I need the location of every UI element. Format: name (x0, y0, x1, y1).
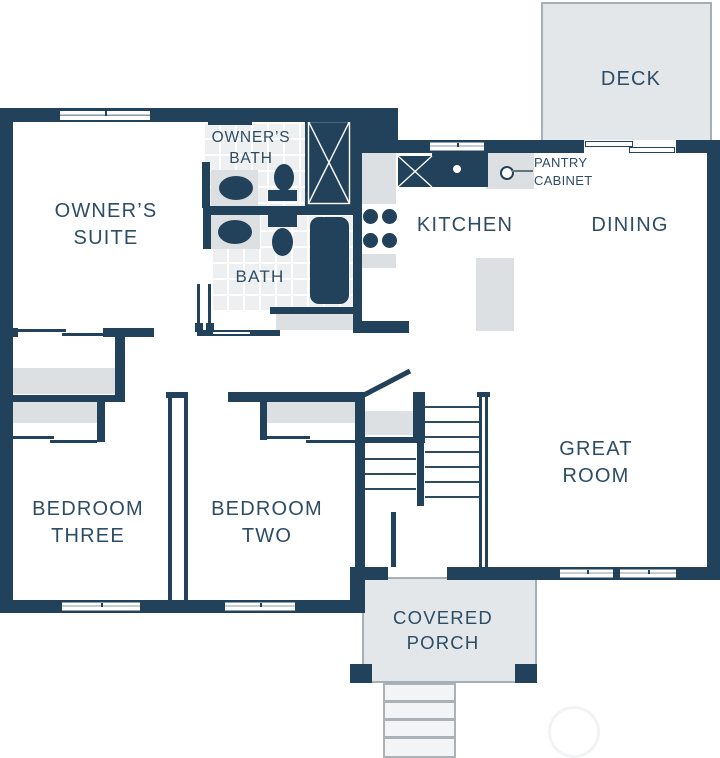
wall (8, 328, 18, 337)
bathtub-icon (310, 217, 349, 304)
porch-post (350, 664, 372, 683)
wall (355, 392, 365, 613)
sink-icon (218, 220, 252, 244)
bath-cabinet (276, 313, 353, 330)
callout-line (512, 170, 533, 172)
closet-door-track (267, 436, 310, 439)
toilet-tank (268, 190, 297, 201)
wall (97, 402, 105, 442)
toilet-tank (268, 215, 297, 227)
kitchen-island (476, 258, 514, 331)
great-room-label: GREAT ROOM (516, 436, 676, 490)
stair-landing (362, 411, 419, 435)
window-mullion (612, 567, 620, 580)
wall (417, 440, 424, 506)
wall (353, 321, 409, 333)
closet-door-track (62, 333, 107, 336)
stair-upper-flight (425, 393, 479, 505)
porch-step (383, 719, 456, 738)
door-leaf (197, 284, 200, 326)
door-swing-icon (358, 364, 414, 398)
wall (355, 437, 425, 443)
porch-post (515, 664, 537, 683)
burner-icon (363, 209, 378, 224)
kitchen-label: KITCHEN (385, 212, 545, 239)
porch-step (383, 683, 456, 702)
pantry-cabinet-label: PANTRY CABINET (534, 154, 624, 190)
toilet-icon (272, 228, 293, 256)
watermark-circle (548, 706, 600, 758)
burner-icon (363, 233, 378, 248)
window (430, 141, 484, 152)
porch-step (383, 737, 456, 758)
wall (8, 395, 116, 402)
pocket-door-track (213, 334, 250, 336)
owners-closet-shelf (10, 368, 115, 394)
bedroom-two-closet-shelf (267, 402, 355, 423)
door-leaf (208, 284, 211, 326)
wall (0, 600, 362, 613)
owners-suite-label: OWNER’S SUITE (26, 198, 186, 252)
pocket-door-track (213, 330, 250, 332)
bedroom-three-label: BEDROOM THREE (8, 496, 168, 550)
kitchen-counter (362, 153, 396, 204)
wall (353, 108, 362, 333)
wall (103, 328, 154, 337)
wall (203, 206, 353, 215)
closet-door-track (306, 440, 355, 443)
callout-marker-icon (500, 166, 514, 180)
wall (270, 307, 353, 314)
window (620, 568, 676, 579)
stair-lower-flight (360, 445, 416, 503)
wall (413, 392, 425, 440)
window (60, 109, 150, 122)
window (560, 568, 613, 579)
wall (203, 213, 211, 249)
porch-step (383, 701, 456, 720)
wall (197, 330, 213, 336)
floor-plan: DECK OWNER’S SUITE OWNER’S BATH BATH KIT… (0, 0, 720, 758)
wall (115, 333, 125, 402)
wall (0, 108, 362, 122)
window (225, 601, 295, 612)
sliding-door-panel (585, 141, 633, 147)
deck-label: DECK (551, 66, 711, 93)
sink-icon (219, 176, 253, 200)
stud-wall-line (168, 397, 172, 600)
wall (707, 140, 720, 580)
window (62, 601, 140, 612)
closet-door-track (8, 436, 54, 439)
wall (260, 392, 267, 440)
closet-door-track (18, 329, 66, 332)
dining-label: DINING (550, 212, 710, 239)
closet-door-track (50, 440, 97, 443)
bath-label: BATH (180, 266, 340, 289)
wall (228, 392, 362, 402)
stud-wall-line (485, 397, 488, 567)
bedroom-two-label: BEDROOM TWO (187, 496, 347, 550)
bedroom-three-closet-shelf (10, 402, 97, 423)
sink-drain-icon (453, 165, 461, 173)
covered-porch-label: COVERED PORCH (363, 606, 523, 656)
wall (250, 330, 280, 336)
sliding-door-panel (629, 147, 675, 153)
refrigerator-icon (396, 154, 434, 189)
wall (391, 512, 396, 567)
owners-bath-label: OWNER’S BATH (171, 128, 331, 170)
wall (208, 119, 252, 125)
stud-wall-line (479, 397, 482, 567)
